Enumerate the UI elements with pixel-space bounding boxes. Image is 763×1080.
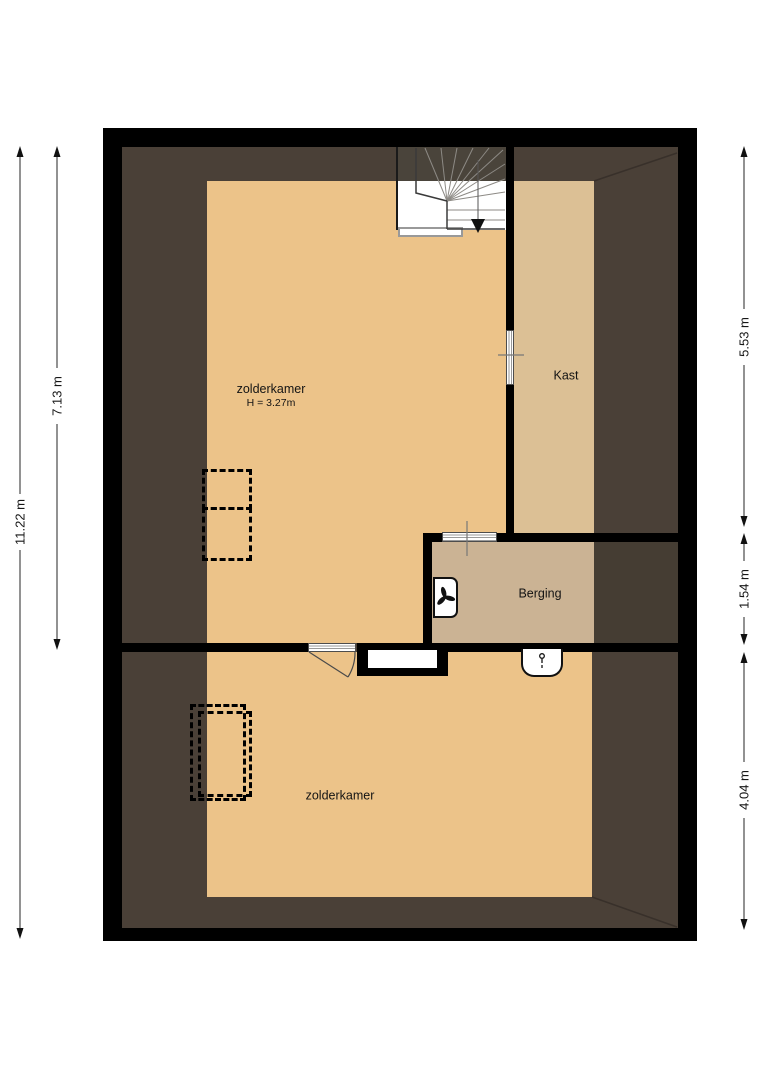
dim-label-right-top: 5.53 m [737,314,752,360]
dim-label-left-outer: 11.22 m [13,496,28,548]
ventilation-unit [433,577,458,618]
wardrobe-lower-front [198,711,252,797]
wardrobe-upper-bottom [202,507,252,561]
under-eaves-right-mid [594,542,678,643]
chimney-niche-inner [368,650,437,668]
label-berging: Berging [518,587,561,602]
room-name: zolderkamer [306,789,375,804]
wall-berging-top-right [497,533,678,542]
room-height: H = 3.27m [237,397,306,410]
room-name: Berging [518,587,561,602]
label-kast: Kast [553,369,578,384]
room-name: Kast [553,369,578,384]
door-berging [442,532,497,542]
stairs-landing-strip [398,227,463,237]
door-zolderkamer-lower [308,643,356,652]
room-name: zolderkamer [237,382,306,397]
wardrobe-upper-top [202,469,252,510]
floorplan-canvas: zolderkamer H = 3.27m Kast Berging zolde… [0,0,763,1080]
label-zolderkamer-upper: zolderkamer H = 3.27m [237,382,306,410]
stairwell-shade [397,147,506,181]
wall-middle-left [122,643,308,652]
room-kast-floor [514,181,594,533]
dim-label-left-inner: 7.13 m [50,373,65,419]
wall-berging-left [423,533,432,652]
dim-label-right-bottom: 4.04 m [737,767,752,813]
wall-kast-upper [506,147,514,330]
stairwell-left-edge [396,147,398,230]
wall-kast-lower [506,385,514,533]
room-zolderkamer-lower-floor [207,652,592,897]
washbasin [521,649,563,677]
door-kast [506,330,514,385]
dim-label-right-middle: 1.54 m [737,566,752,612]
label-zolderkamer-lower: zolderkamer [306,789,375,804]
